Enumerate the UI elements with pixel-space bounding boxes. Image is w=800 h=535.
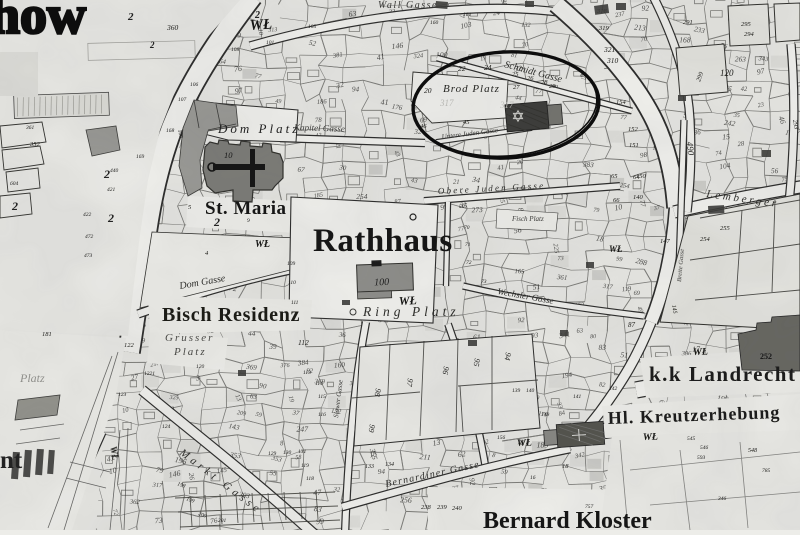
svg-text:115: 115 bbox=[318, 394, 326, 400]
svg-text:122: 122 bbox=[124, 342, 135, 349]
svg-text:WŁ: WŁ bbox=[398, 293, 417, 308]
svg-text:123: 123 bbox=[118, 392, 127, 398]
svg-text:109: 109 bbox=[287, 261, 296, 267]
svg-text:124: 124 bbox=[162, 423, 171, 430]
svg-text:111: 111 bbox=[291, 300, 299, 306]
svg-text:108: 108 bbox=[231, 47, 240, 53]
svg-text:Platz: Platz bbox=[173, 346, 207, 358]
svg-text:29: 29 bbox=[549, 83, 556, 90]
svg-text:110: 110 bbox=[288, 280, 296, 286]
svg-text:133: 133 bbox=[365, 464, 374, 470]
svg-text:2: 2 bbox=[149, 40, 155, 50]
svg-text:1221: 1221 bbox=[144, 371, 155, 377]
svg-text:112: 112 bbox=[298, 338, 309, 347]
svg-text:WŁ: WŁ bbox=[693, 346, 708, 358]
svg-text:291: 291 bbox=[683, 19, 693, 26]
svg-text:96: 96 bbox=[441, 366, 451, 375]
svg-text:106: 106 bbox=[190, 82, 199, 88]
svg-text:64: 64 bbox=[633, 174, 640, 181]
svg-text:240: 240 bbox=[452, 505, 463, 512]
svg-text:593: 593 bbox=[697, 455, 706, 461]
svg-text:50: 50 bbox=[459, 204, 465, 210]
svg-text:101: 101 bbox=[266, 40, 275, 46]
svg-text:119: 119 bbox=[301, 463, 309, 469]
svg-text:Bisch Residenz: Bisch Residenz bbox=[162, 304, 300, 326]
svg-text:118: 118 bbox=[306, 476, 314, 482]
svg-text:139: 139 bbox=[512, 388, 521, 394]
svg-text:98: 98 bbox=[373, 388, 383, 397]
svg-text:604: 604 bbox=[10, 180, 19, 187]
svg-text:Platz: Platz bbox=[19, 371, 45, 385]
svg-text:WŁ: WŁ bbox=[517, 437, 532, 449]
svg-text:490: 490 bbox=[685, 141, 696, 156]
svg-text:294: 294 bbox=[744, 31, 755, 38]
svg-text:440: 440 bbox=[110, 167, 119, 174]
svg-text:238: 238 bbox=[421, 504, 432, 511]
svg-text:107: 107 bbox=[178, 97, 187, 103]
svg-text:Kapitel Gasse: Kapitel Gasse bbox=[293, 122, 345, 134]
svg-text:99: 99 bbox=[367, 424, 377, 433]
svg-text:120: 120 bbox=[196, 364, 205, 370]
svg-text:how: how bbox=[0, 0, 86, 45]
svg-text:130: 130 bbox=[283, 450, 292, 456]
svg-text:95: 95 bbox=[472, 358, 482, 367]
svg-text:73: 73 bbox=[481, 279, 487, 285]
svg-text:2: 2 bbox=[11, 199, 18, 213]
svg-text:71: 71 bbox=[465, 242, 471, 248]
svg-text:2: 2 bbox=[103, 167, 110, 181]
svg-text:116: 116 bbox=[318, 412, 326, 418]
svg-text:WŁ: WŁ bbox=[249, 16, 273, 34]
svg-text:473: 473 bbox=[84, 252, 93, 259]
svg-text:26: 26 bbox=[527, 75, 534, 82]
svg-text:360: 360 bbox=[166, 23, 179, 32]
svg-text:154: 154 bbox=[616, 99, 627, 106]
svg-text:346: 346 bbox=[717, 495, 727, 502]
svg-text:Grusser: Grusser bbox=[165, 332, 214, 344]
svg-text:310: 310 bbox=[606, 56, 619, 65]
svg-text:2: 2 bbox=[127, 11, 134, 23]
svg-text:129: 129 bbox=[268, 451, 277, 457]
svg-text:317: 317 bbox=[439, 98, 454, 108]
svg-text:757: 757 bbox=[585, 504, 594, 510]
svg-text:113: 113 bbox=[303, 370, 311, 376]
svg-text:Fisch Platz: Fisch Platz bbox=[511, 215, 544, 223]
svg-text:295: 295 bbox=[741, 21, 752, 28]
svg-text:156: 156 bbox=[497, 435, 506, 441]
svg-text:361: 361 bbox=[25, 125, 35, 131]
svg-text:70: 70 bbox=[464, 225, 470, 231]
svg-text:131: 131 bbox=[298, 449, 307, 455]
svg-text:114: 114 bbox=[315, 380, 323, 387]
svg-text:422: 422 bbox=[83, 211, 92, 218]
svg-text:Bernard Kloster: Bernard Kloster bbox=[483, 508, 652, 530]
svg-text:20: 20 bbox=[424, 86, 432, 95]
svg-text:352: 352 bbox=[29, 141, 41, 148]
svg-text:151: 151 bbox=[629, 142, 639, 149]
svg-text:140: 140 bbox=[526, 387, 535, 394]
svg-text:2: 2 bbox=[107, 211, 114, 225]
svg-text:105: 105 bbox=[308, 24, 317, 30]
svg-text:160: 160 bbox=[430, 20, 439, 26]
svg-text:120: 120 bbox=[720, 68, 734, 78]
svg-text:Brod Platz: Brod Platz bbox=[443, 83, 500, 95]
svg-text:WŁ: WŁ bbox=[643, 431, 658, 443]
svg-text:254: 254 bbox=[700, 236, 711, 243]
svg-text:22: 22 bbox=[458, 64, 466, 73]
svg-text:785: 785 bbox=[762, 468, 771, 474]
svg-text:WŁ: WŁ bbox=[255, 239, 270, 250]
svg-text:149: 149 bbox=[541, 411, 550, 418]
svg-text:16: 16 bbox=[530, 475, 536, 481]
svg-text:546: 546 bbox=[700, 444, 709, 451]
svg-text:WŁ: WŁ bbox=[609, 244, 623, 254]
svg-text:161: 161 bbox=[463, 12, 472, 18]
svg-text:548: 548 bbox=[748, 447, 757, 454]
svg-text:87: 87 bbox=[628, 321, 636, 329]
svg-text:65: 65 bbox=[611, 173, 618, 180]
svg-text:18: 18 bbox=[562, 463, 569, 470]
svg-text:66: 66 bbox=[613, 197, 620, 204]
svg-text:Dom Platz: Dom Platz bbox=[217, 121, 300, 136]
svg-text:142: 142 bbox=[609, 385, 618, 392]
svg-text:94: 94 bbox=[503, 352, 513, 361]
svg-text:319: 319 bbox=[598, 25, 610, 32]
svg-text:545: 545 bbox=[687, 435, 696, 442]
svg-text:152: 152 bbox=[628, 126, 639, 133]
svg-text:2: 2 bbox=[213, 215, 220, 229]
svg-text:239: 239 bbox=[437, 504, 448, 511]
svg-text:169: 169 bbox=[136, 154, 145, 160]
svg-text:317: 317 bbox=[499, 100, 514, 110]
svg-text:Rathhaus: Rathhaus bbox=[313, 223, 453, 259]
svg-text:141: 141 bbox=[573, 393, 582, 400]
svg-text:472: 472 bbox=[85, 233, 94, 240]
svg-text:134: 134 bbox=[385, 461, 394, 468]
svg-text:25: 25 bbox=[512, 71, 519, 78]
svg-text:181: 181 bbox=[42, 331, 52, 338]
svg-text:168: 168 bbox=[166, 128, 175, 134]
svg-text:72: 72 bbox=[466, 260, 472, 266]
svg-text:2: 2 bbox=[254, 10, 260, 21]
svg-text:k.k Landrecht: k.k Landrecht bbox=[649, 362, 796, 386]
svg-text:321: 321 bbox=[603, 45, 615, 54]
svg-text:140: 140 bbox=[633, 194, 644, 201]
svg-text:147: 147 bbox=[660, 238, 671, 245]
svg-text:27: 27 bbox=[513, 84, 520, 91]
svg-text:28: 28 bbox=[541, 79, 548, 86]
svg-text:421: 421 bbox=[107, 186, 116, 193]
svg-text:24: 24 bbox=[484, 63, 492, 72]
svg-text:9: 9 bbox=[247, 218, 250, 224]
svg-text:45: 45 bbox=[463, 119, 470, 126]
svg-text:255: 255 bbox=[720, 225, 731, 232]
svg-text:Wall Gasse: Wall Gasse bbox=[378, 0, 438, 11]
svg-text:nt: nt bbox=[0, 447, 23, 474]
